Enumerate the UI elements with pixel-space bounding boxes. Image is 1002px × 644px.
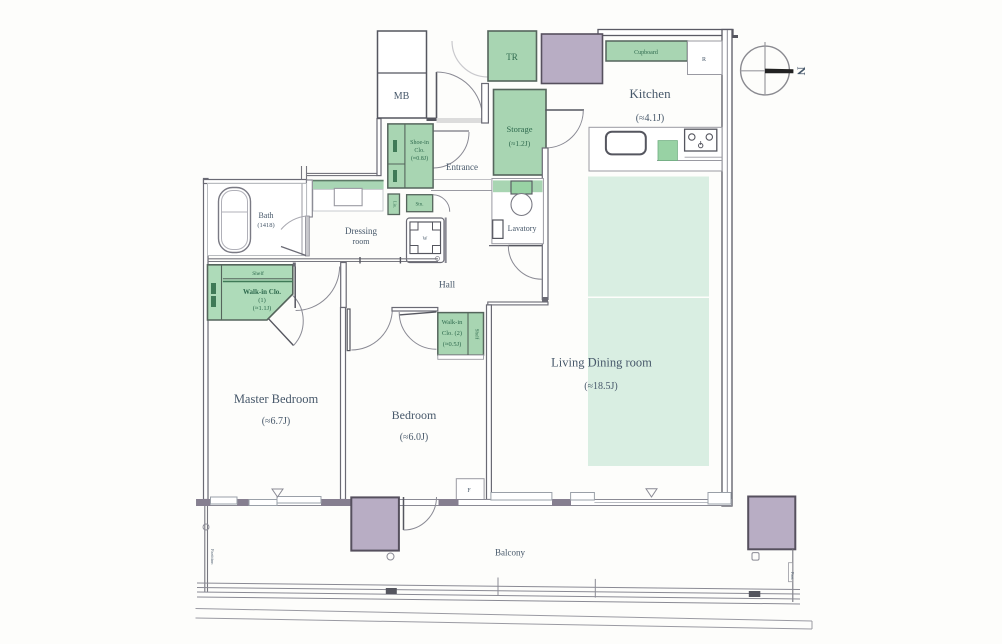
svg-text:(≈1.1J): (≈1.1J)	[253, 305, 272, 312]
svg-text:Clo.: Clo.	[414, 148, 425, 154]
svg-text:Hall: Hall	[439, 281, 456, 291]
svg-text:Part.: Part.	[790, 572, 795, 580]
svg-text:(1418): (1418)	[257, 222, 274, 229]
svg-text:(≈4.1J): (≈4.1J)	[636, 113, 665, 124]
svg-text:Shoe-in: Shoe-in	[410, 140, 429, 146]
svg-text:(≈6.0J): (≈6.0J)	[400, 432, 429, 443]
svg-text:Kitchen: Kitchen	[629, 86, 671, 101]
svg-text:Entrance: Entrance	[446, 162, 478, 172]
svg-text:Cupboard: Cupboard	[634, 50, 658, 56]
svg-text:Storage: Storage	[507, 124, 533, 134]
svg-text:Stn.: Stn.	[416, 203, 424, 208]
svg-text:TR: TR	[506, 52, 518, 62]
svg-text:N: N	[794, 67, 808, 76]
svg-text:R: R	[702, 57, 706, 63]
svg-text:W: W	[423, 237, 428, 242]
svg-text:Walk-in Clo.: Walk-in Clo.	[243, 288, 281, 296]
svg-text:room: room	[353, 237, 371, 246]
svg-text:Walk-in: Walk-in	[442, 319, 464, 326]
svg-text:Master Bedroom: Master Bedroom	[234, 392, 319, 406]
svg-text:(≈0.5J): (≈0.5J)	[443, 341, 462, 348]
svg-text:(1): (1)	[258, 297, 266, 304]
svg-text:Lavatory: Lavatory	[508, 224, 537, 233]
svg-text:(≈0.8J): (≈0.8J)	[411, 155, 428, 162]
svg-text:Bedroom: Bedroom	[392, 408, 437, 422]
svg-text:(≈18.5J): (≈18.5J)	[584, 381, 618, 392]
svg-text:Bath: Bath	[258, 211, 273, 220]
svg-text:MB: MB	[394, 91, 410, 102]
svg-text:(≈6.7J): (≈6.7J)	[262, 416, 291, 427]
svg-text:Clo. (2): Clo. (2)	[442, 330, 462, 337]
svg-text:Balcony: Balcony	[495, 548, 525, 558]
svg-text:Partition: Partition	[210, 549, 215, 565]
svg-text:(≈1.2J): (≈1.2J)	[509, 139, 531, 148]
svg-text:Shelf: Shelf	[474, 329, 479, 340]
svg-text:Lin.: Lin.	[393, 201, 398, 208]
svg-text:Shelf: Shelf	[252, 270, 264, 277]
svg-text:Living Dining room: Living Dining room	[551, 356, 652, 370]
svg-text:Dressing: Dressing	[345, 226, 377, 236]
